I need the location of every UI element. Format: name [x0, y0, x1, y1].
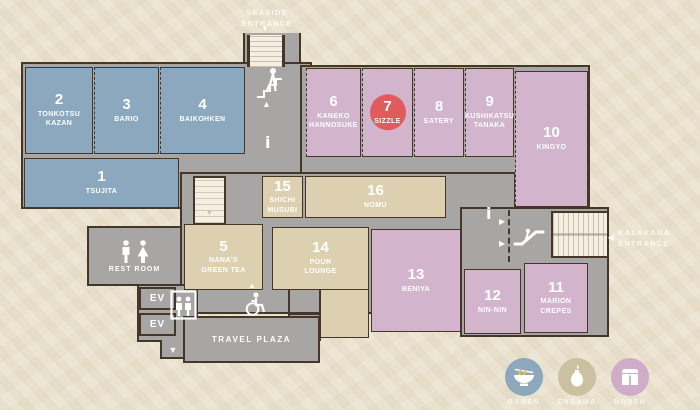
unit-8-eatery: 8 EATERY — [414, 68, 464, 157]
unit-12-nin-nin: 12 NIN-NIN — [464, 269, 521, 334]
stairs-down-arrow-icon: ▼ — [206, 209, 214, 217]
seaside-down-arrow-icon: ▼ — [261, 25, 269, 33]
unit-4-baikohken: 4 BAIKOHKEN — [160, 67, 245, 154]
unit-14-pour-lounge: 14 POUR LOUNGE — [272, 227, 369, 290]
sake-bottle-icon — [569, 365, 585, 389]
legend-label: ENGAWA — [558, 399, 597, 406]
entrance-line: KALAKAUA — [618, 227, 670, 238]
right-arrow-icon: ▶ — [499, 240, 505, 248]
unit-name: MARION CREPES — [531, 297, 581, 316]
unit-number: 16 — [367, 183, 384, 199]
unit-name: KUSHIKATSU TANAKA — [463, 112, 516, 131]
unit-14-extension — [320, 288, 369, 338]
wheelchair-icon — [243, 292, 265, 316]
unit-number: 13 — [408, 267, 425, 283]
entrance-line: ENTRANCE — [618, 238, 670, 249]
unit-name: NANA'S GREEN TEA — [196, 256, 252, 275]
kalakaua-entrance-label: ◀ KALAKAUA ENTRANCE — [608, 227, 670, 250]
unit-name: TONKOTSU KAZAN — [26, 110, 92, 129]
legend-item-engawa: ENGAWA — [558, 358, 596, 406]
legend-label: RAMEN — [508, 399, 540, 406]
unit-number: 12 — [484, 288, 501, 304]
travel-plaza-label: TRAVEL PLAZA — [212, 335, 291, 344]
unit-name: KINGYO — [534, 143, 568, 152]
restroom-icon — [116, 240, 154, 264]
kalakaua-entrance-stairs — [551, 211, 609, 258]
unit-number: 2 — [55, 92, 63, 108]
unit-number: 7 — [383, 99, 391, 115]
legend-item-ramen: RAMEN — [505, 358, 543, 406]
unit-2-tonkotsu-kazan: 2 TONKOTSU KAZAN — [25, 67, 93, 154]
unit-name: TSUJITA — [84, 187, 119, 196]
legend-circle-ramen — [505, 358, 543, 396]
unit-number: 15 — [274, 179, 291, 195]
right-arrow-icon: ▶ — [499, 218, 505, 226]
travel-plaza: TRAVEL PLAZA — [183, 316, 320, 363]
unit-number: 8 — [435, 99, 443, 115]
unit-number: 11 — [548, 280, 564, 296]
legend-item-noren: NOREN — [611, 358, 649, 406]
unit-name: NOMU — [362, 201, 389, 210]
unit-3-bario: 3 BARIO — [94, 67, 159, 154]
information-icon: i — [486, 204, 491, 223]
corridor-box — [288, 287, 321, 314]
elevator-icon — [170, 290, 197, 320]
ev-label: EV — [150, 319, 165, 330]
unit-9-kushikatsu-tanaka: 9 KUSHIKATSU TANAKA — [465, 68, 514, 157]
unit-name: POUR LOUNGE — [301, 258, 341, 277]
entrance-line: SEASIDE — [227, 7, 307, 18]
legend-label: NOREN — [614, 399, 646, 406]
unit-name: BAIKOHKEN — [178, 115, 228, 124]
legend: RAMEN ENGAWA — [505, 358, 649, 406]
interior-stairs: ▼ — [193, 176, 226, 225]
legend-circle-engawa — [558, 358, 596, 396]
up-arrow-icon: ▲ — [248, 282, 256, 290]
unit-15-shichi-musubi: 15 SHICHI MUSUBI — [262, 176, 303, 218]
legend-circle-noren — [611, 358, 649, 396]
unit-16-nomu: 16 NOMU — [305, 176, 446, 218]
floor-map: ▼ ▼ 2 TONKOTSU KAZAN 3 BARIO 4 BAIKOHKEN… — [0, 0, 700, 410]
unit-name: SHICHI MUSUBI — [265, 196, 301, 215]
escalator-guide-line — [508, 210, 510, 262]
seaside-entrance-stairs — [247, 35, 285, 67]
unit-13-beniya: 13 BENIYA — [371, 229, 461, 332]
unit-name: BARIO — [112, 115, 141, 124]
ev-label: EV — [150, 293, 165, 304]
unit-number: 5 — [219, 239, 227, 255]
rest-room-label: REST ROOM — [109, 266, 160, 273]
kalakaua-left-arrow-icon: ◀ — [608, 234, 614, 242]
unit-name: EATERY — [422, 117, 456, 126]
unit-number: 14 — [312, 240, 329, 256]
escalator-icon — [513, 226, 547, 248]
noren-curtain-icon — [620, 367, 640, 387]
unit-number: 9 — [485, 94, 493, 110]
unit-6-kaneko-hannosuke: 6 KANEKO HANNOSUKE — [306, 68, 361, 157]
unit-number: 4 — [198, 97, 206, 113]
unit-10-kingyo: 10 KINGYO — [515, 71, 588, 207]
unit-1-tsujita: 1 TSUJITA — [24, 158, 179, 208]
unit-number: 3 — [122, 97, 130, 113]
person-stairs-icon — [255, 66, 285, 100]
unit-number: 10 — [543, 125, 560, 141]
unit-number: 6 — [329, 94, 337, 110]
ramen-bowl-icon — [512, 366, 536, 388]
up-arrow-icon: ▲ — [262, 100, 271, 109]
unit-name: SIZZLE — [372, 117, 403, 126]
information-icon: i — [265, 133, 270, 152]
rest-room: REST ROOM — [87, 226, 182, 286]
unit-7-sizzle-highlighted: 7 SIZZLE — [362, 68, 413, 157]
unit-name: KANEKO HANNOSUKE — [307, 112, 360, 131]
unit-11-marion-crepes: 11 MARION CREPES — [524, 263, 588, 333]
down-arrow-icon: ▼ — [169, 345, 178, 355]
unit-number: 1 — [97, 169, 105, 185]
unit-name: BENIYA — [400, 285, 432, 294]
unit-name: NIN-NIN — [476, 306, 509, 315]
